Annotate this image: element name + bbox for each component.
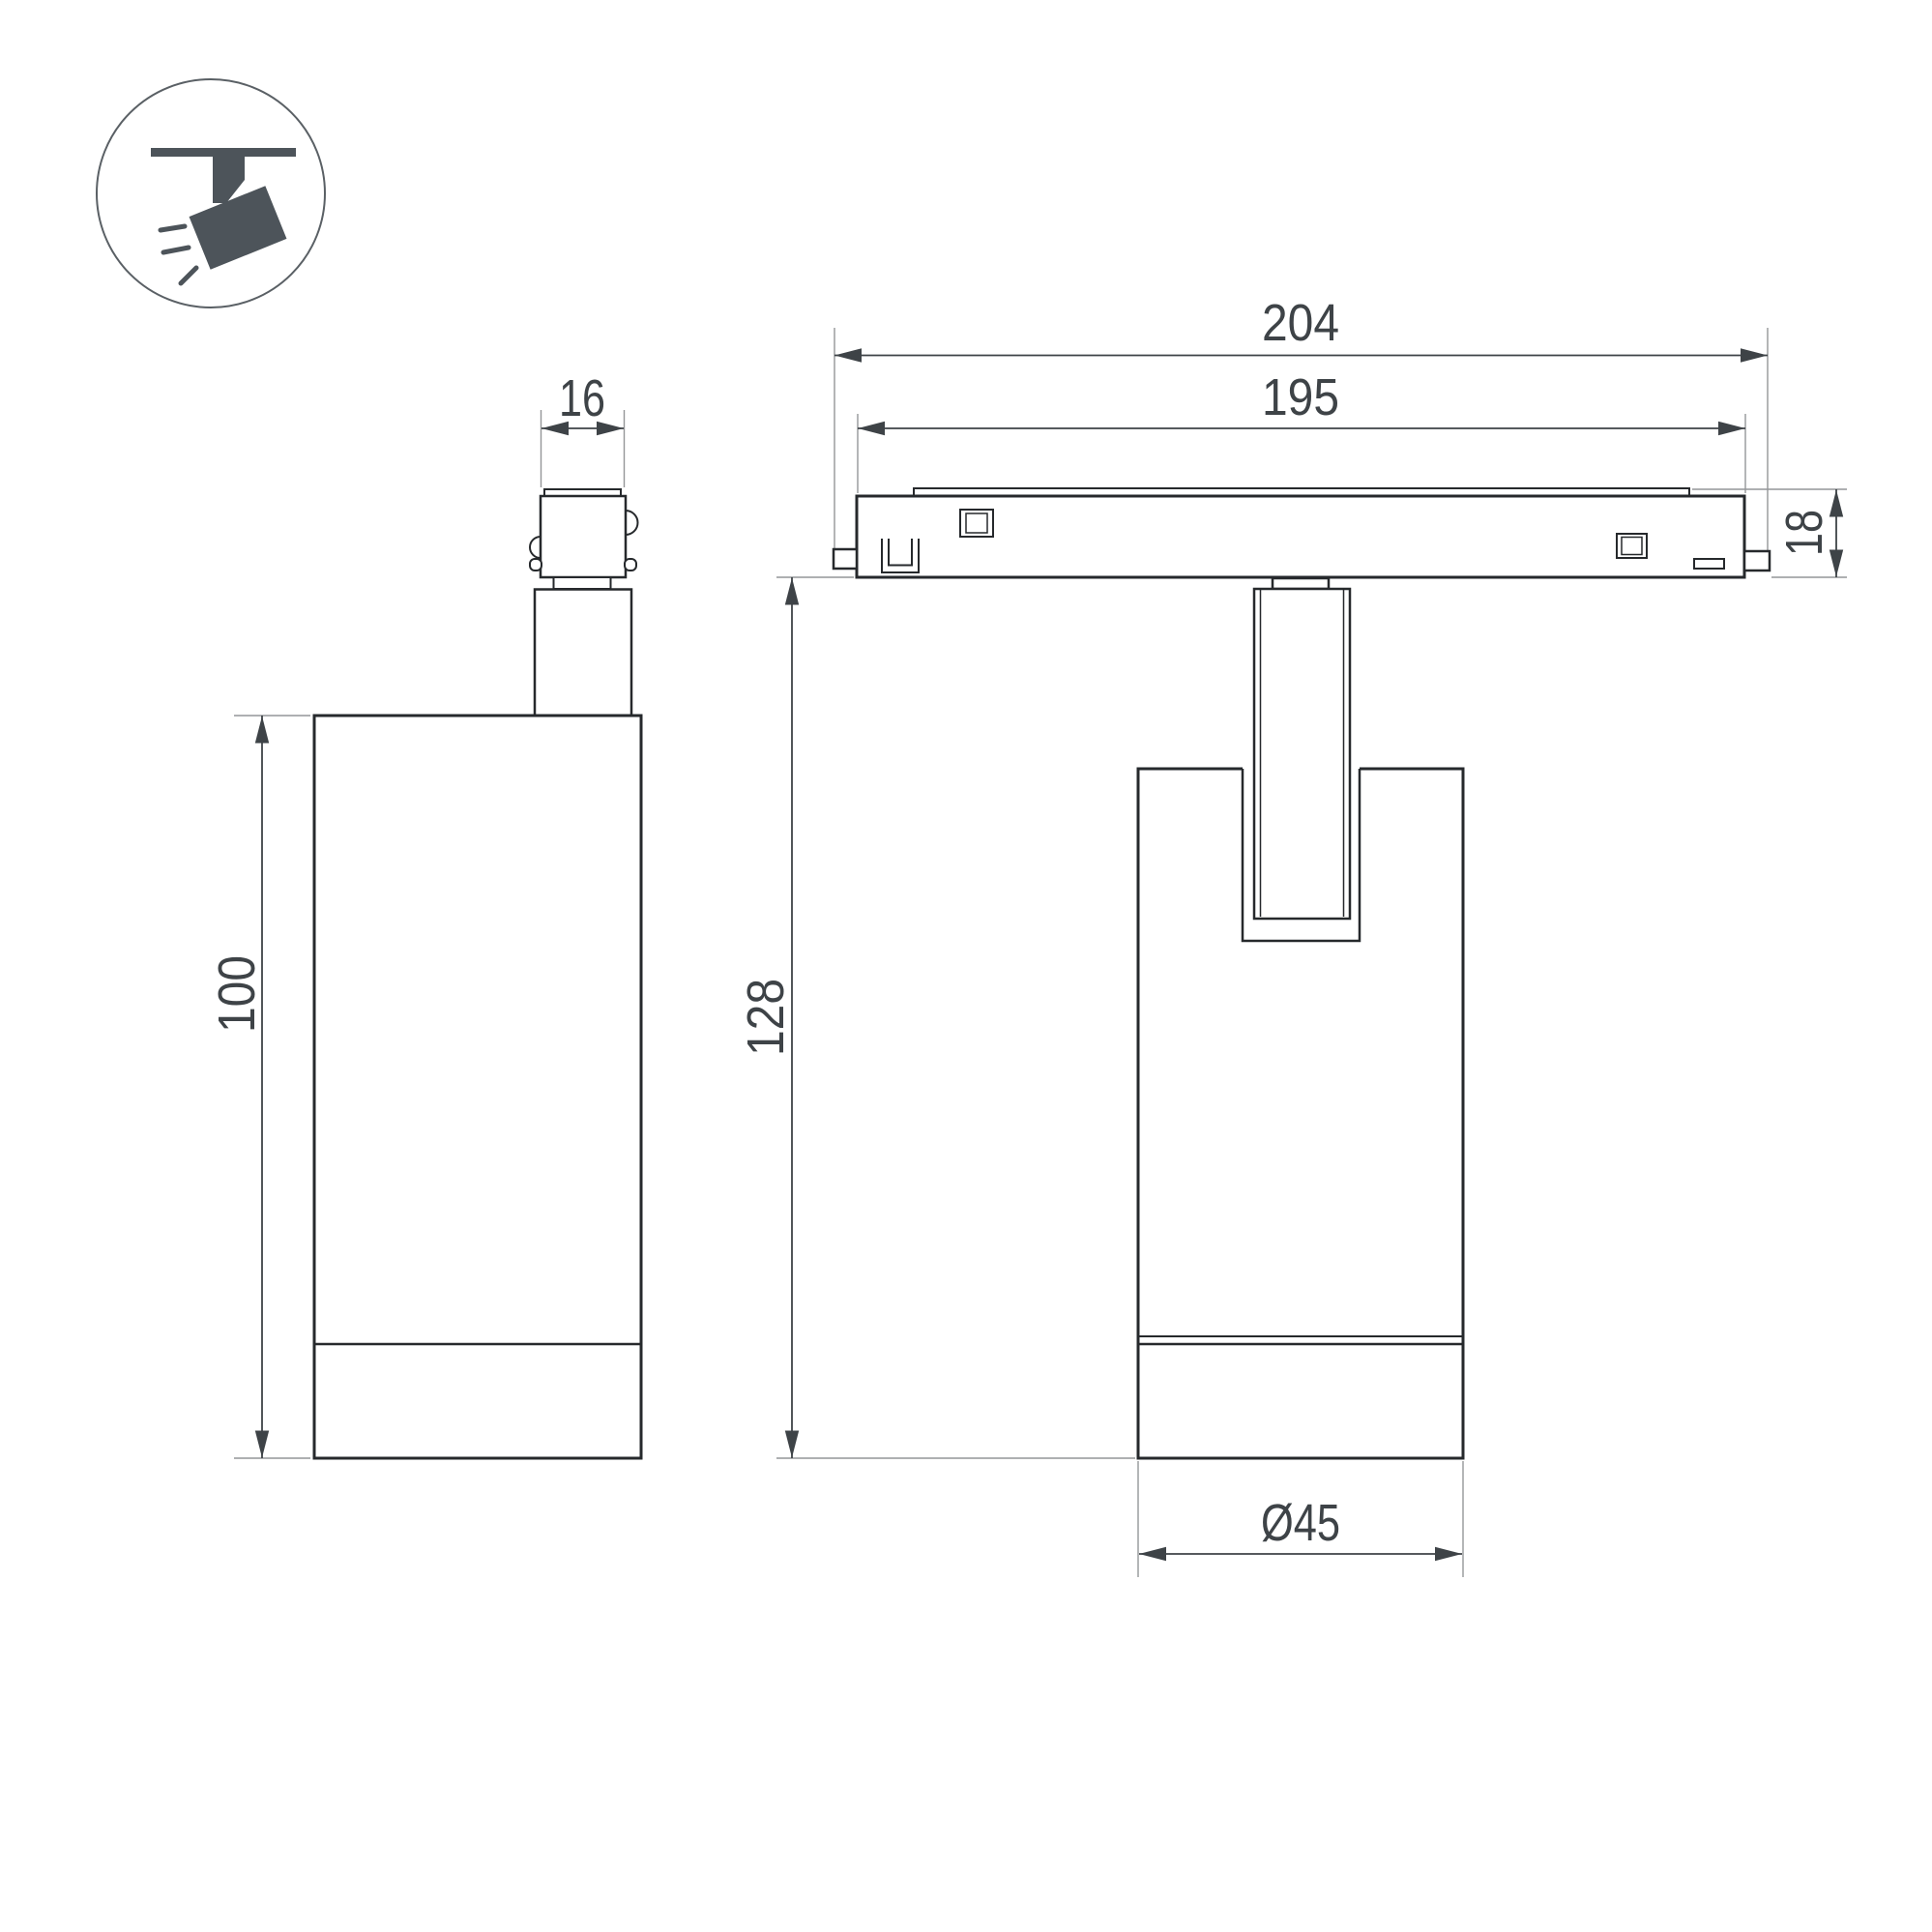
- dimension-16: 16: [542, 369, 625, 487]
- icon-spotlight-body: [190, 186, 287, 270]
- adapter-hook-right: [625, 559, 636, 571]
- stem-flange: [1273, 578, 1329, 589]
- track-slot-right: [1694, 559, 1724, 569]
- track-spotlight-icon: [97, 79, 325, 307]
- dim-100-label: 100: [208, 955, 266, 1033]
- icon-ceiling-line: [151, 148, 296, 157]
- technical-drawing-page: 16 100 204: [0, 0, 1932, 1932]
- dimension-drawing: 16 100 204: [0, 0, 1932, 1932]
- arrowhead: [1139, 1547, 1166, 1561]
- track-end-tab-right: [1744, 551, 1770, 571]
- front-view: 204 195 18: [737, 294, 1847, 1577]
- track-adapter: [541, 496, 626, 577]
- dimension-diameter-45: Ø45: [1138, 1461, 1463, 1577]
- dim-16-label: 16: [559, 369, 605, 427]
- dim-195-label: 195: [1262, 368, 1339, 426]
- stem-front: [1254, 589, 1350, 919]
- arrowhead: [785, 1431, 799, 1458]
- dim-128-label: 128: [737, 979, 795, 1056]
- track-end-tab-left: [834, 549, 857, 569]
- dim-45-label: Ø45: [1261, 1494, 1340, 1552]
- stem-side: [535, 590, 631, 717]
- icon-light-rays: [161, 226, 196, 283]
- dim-18-label: 18: [1775, 510, 1833, 556]
- arrowhead: [255, 1431, 269, 1458]
- icon-circle-border: [97, 79, 325, 307]
- arrowhead: [858, 422, 885, 435]
- icon-mount-stem: [213, 157, 245, 203]
- arrowhead: [1718, 422, 1745, 435]
- dimension-128: 128: [737, 577, 1135, 1458]
- arrowhead: [1435, 1547, 1462, 1561]
- adapter-neck: [554, 577, 611, 589]
- dimension-195: 195: [858, 368, 1745, 493]
- side-view: 16 100: [208, 369, 641, 1458]
- arrowhead: [834, 348, 862, 362]
- arrowhead: [255, 717, 269, 744]
- lamp-body-side: [314, 716, 641, 1458]
- dimension-100: 100: [208, 716, 310, 1458]
- adapter-hook-left: [530, 559, 542, 571]
- dim-204-label: 204: [1262, 294, 1339, 352]
- adapter-spring-right: [626, 511, 638, 535]
- adapter-spring-left: [530, 537, 541, 558]
- arrowhead: [1741, 348, 1768, 362]
- arrowhead: [785, 578, 799, 605]
